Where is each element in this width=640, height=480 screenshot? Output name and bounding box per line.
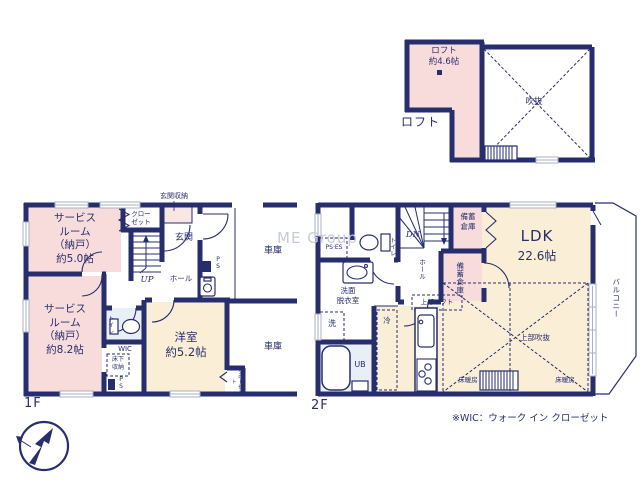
f2-ps-es-label: PS·ES xyxy=(320,244,348,252)
f1-entrance-storage-label: 玄関収納 xyxy=(145,192,203,201)
kitchen-counter-icon xyxy=(415,308,437,392)
f1-garage-upper-label: 車庫 xyxy=(253,246,293,258)
f2-upper-loft-label: 上部ロフト xyxy=(412,298,462,306)
f2-washroom-label: 洗面 脱衣室 xyxy=(326,286,370,306)
f1-service-room-a-label: サービス ルーム （納戸） 約5.0帖 xyxy=(30,212,120,267)
f1-washbasin-icon xyxy=(200,277,215,296)
loft-void-label: 吹抜 xyxy=(512,97,556,108)
f1-ps-duct xyxy=(199,261,211,272)
f1-entrance-door-arc xyxy=(203,214,228,239)
loft-hatch-mark xyxy=(437,70,442,75)
f1-ps-duct-wic xyxy=(108,379,115,390)
f2-unit-bath-label: UB xyxy=(350,360,370,370)
f1-entrance-storage-floor xyxy=(162,207,192,223)
f1-wic-label: WIC xyxy=(110,345,140,354)
f2-storage-a-label: 備蓄 倉庫 xyxy=(454,212,482,232)
f1-hall-label: ホール xyxy=(164,274,198,284)
f2-hall-label: ホール xyxy=(417,253,425,285)
f2-toilet-icon xyxy=(360,234,390,251)
f1-service-room-b-label: サービス ルーム （納戸） 約8.2帖 xyxy=(30,303,100,358)
f2-floor-heating-right-label: 床暖房 xyxy=(551,376,579,384)
footnote: ※WIC：ウォーク イン クローゼット xyxy=(452,413,622,425)
f1-side-closet-label: クローゼット xyxy=(229,369,243,394)
f2-dn-label: DN xyxy=(400,230,426,241)
casement-window-mark xyxy=(593,211,601,225)
f2-ladder-icon xyxy=(480,371,518,390)
loft-floor-label: ロフト xyxy=(401,115,440,131)
loft-room-label: ロフト 約4.6帖 xyxy=(414,46,474,68)
compass-icon xyxy=(16,422,68,470)
f1-toilet-icon xyxy=(110,319,140,334)
f2-washer-label: 洗 xyxy=(325,319,339,329)
f1-western-room-label: 洋室 約5.2帖 xyxy=(150,330,222,360)
f2-washbasin-icon xyxy=(343,262,373,283)
f2-fridge-label: 冷 xyxy=(380,316,394,326)
f2-balcony-label: バルコニー xyxy=(611,268,621,328)
f2-upper-void-label: 上部吹抜 xyxy=(505,333,565,343)
f1-garage-lower-label: 車庫 xyxy=(253,342,293,354)
f2-ldk-size-label: 22.6帖 xyxy=(496,249,578,265)
f1-closet-top-label: クロー ゼット xyxy=(124,210,158,227)
f1-entrance-label: 玄関 xyxy=(168,233,200,245)
loft-ladder-icon xyxy=(485,146,517,160)
f2-storage-b-label: 備蓄倉庫 xyxy=(455,256,465,300)
f1-toilet-label: トイレ xyxy=(106,311,114,339)
f2-floor-label: 2F xyxy=(311,398,329,415)
f1-floor-label: 1F xyxy=(24,396,42,413)
f1-ps-label: P S xyxy=(213,257,223,270)
floor-plan: ME Group xyxy=(0,0,640,480)
f1-ps-wic-label: P S xyxy=(116,377,126,390)
f2-ldk-label: LDK xyxy=(496,227,578,247)
f1-underfloor-label: 床下 収納 xyxy=(107,356,129,373)
f1-stairs xyxy=(131,235,161,273)
f1-up-label: UP xyxy=(133,275,161,286)
f2-toilet-label: トイレ xyxy=(388,233,396,261)
f2-floor-heating-left-label: 床暖房 xyxy=(454,376,482,384)
